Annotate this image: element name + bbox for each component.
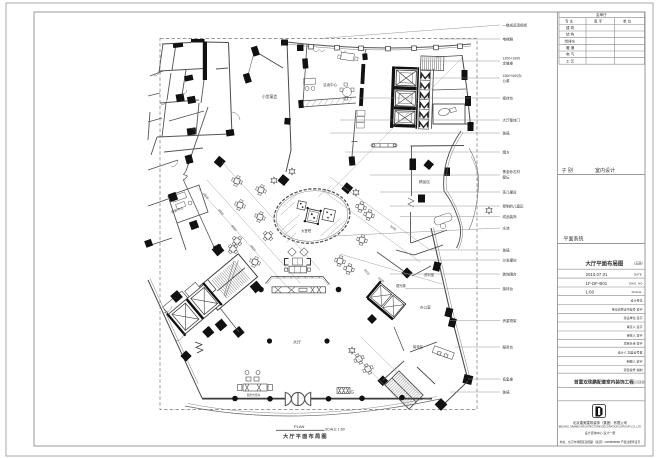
svg-text:PLAN: PLAN	[294, 424, 305, 429]
svg-text:成品装饰: 成品装饰	[503, 214, 517, 219]
svg-text:(五层改造): (五层改造)	[633, 380, 645, 384]
svg-text:工 艺: 工 艺	[566, 58, 575, 63]
svg-text:黑金砂石材: 黑金砂石材	[503, 169, 521, 174]
svg-text:签 字: 签 字	[594, 18, 603, 23]
svg-text:SCALE: SCALE	[632, 290, 642, 294]
svg-text:会审厅: 会审厅	[596, 12, 607, 17]
svg-text:装饰隔台: 装饰隔台	[503, 272, 517, 277]
svg-text:建 筑: 建 筑	[566, 25, 575, 30]
svg-text:预制的儿童区: 预制的儿童区	[503, 204, 524, 209]
svg-text:G: G	[351, 390, 355, 395]
svg-text:服务台: 服务台	[503, 345, 514, 350]
svg-text:玻璃: 玻璃	[503, 248, 511, 253]
svg-text:北京建美建筑装饰（集团）有限公司: 北京建美建筑装饰（集团）有限公司	[573, 420, 627, 425]
svg-text:壁坛: 壁坛	[503, 175, 511, 180]
svg-text:DATE: DATE	[634, 273, 642, 277]
svg-text:暖 通: 暖 通	[566, 45, 575, 50]
svg-text:接待区: 接待区	[413, 344, 424, 349]
svg-text:洽谈中心: 洽谈中心	[323, 82, 338, 87]
svg-text:SCALE 1:60: SCALE 1:60	[325, 428, 345, 432]
svg-text:设计咨询中心 设计一部: 设计咨询中心 设计一部	[585, 430, 616, 435]
svg-text:玻璃: 玻璃	[503, 131, 511, 136]
svg-text:制图人 签字: 制图人 签字	[627, 359, 643, 364]
svg-text:地址：北京市朝阳区建国路（集团）4008888888 产权: 地址：北京市朝阳区建国路（集团）4008888888 产权注册师证号	[560, 440, 641, 444]
svg-text:首富双珠鹏配套室内装饰工程: 首富双珠鹏配套室内装饰工程	[574, 379, 634, 386]
svg-text:室内设计: 室内设计	[595, 167, 615, 174]
svg-text:服务台咨询: 服务台咨询	[247, 393, 260, 397]
svg-text:审定人 签字: 审定人 签字	[627, 324, 643, 329]
svg-text:1500+600办: 1500+600办	[503, 73, 523, 78]
svg-text:1200+1900: 1200+1900	[503, 57, 521, 61]
svg-text:大厅: 大厅	[293, 339, 301, 345]
svg-text:建设单位 签字: 建设单位 签字	[624, 315, 643, 320]
svg-text:一楼成品顶视柜: 一楼成品顶视柜	[503, 23, 528, 28]
svg-text:公桌: 公桌	[503, 78, 511, 83]
svg-text:玻璃: 玻璃	[503, 390, 511, 395]
svg-text:DWG. NO: DWG. NO	[629, 282, 643, 286]
svg-text:沙发摆向: 沙发摆向	[503, 258, 517, 263]
svg-text:结 构: 结 构	[566, 32, 575, 37]
svg-text:电梯厢: 电梯厢	[503, 37, 514, 42]
svg-text:小型宴会: 小型宴会	[262, 94, 277, 99]
svg-text:水池: 水池	[503, 226, 511, 231]
svg-text:办公室: 办公室	[420, 305, 431, 310]
svg-text:（五层）: （五层）	[632, 261, 645, 266]
svg-text:定做桌: 定做桌	[503, 61, 514, 66]
svg-text:资料室: 资料室	[424, 272, 435, 277]
svg-text:接待台: 接待台	[503, 286, 514, 291]
svg-text:专 业: 专 业	[565, 18, 574, 23]
svg-text:设计单位: 设计单位	[630, 298, 642, 303]
svg-text:给排水: 给排水	[565, 38, 576, 43]
svg-text:电 气: 电 气	[566, 52, 575, 57]
svg-text:平面系统: 平面系统	[564, 236, 584, 243]
svg-text:接待台: 接待台	[503, 96, 514, 101]
svg-text:精品店: 精品店	[419, 179, 430, 184]
svg-text:大厅平面布局图: 大厅平面布局图	[283, 432, 328, 440]
svg-text:2010.07.01: 2010.07.01	[586, 272, 609, 277]
svg-text:单位资质证书编号 签字: 单位资质证书编号 签字	[612, 307, 643, 312]
svg-text:项目负责 签字: 项目负责 签字	[624, 341, 643, 346]
svg-text:项目编号 编制: 项目编号 编制	[624, 367, 643, 372]
svg-text:观光梯: 观光梯	[396, 283, 406, 288]
svg-text:1:60: 1:60	[586, 290, 595, 295]
svg-text:大堂吧: 大堂吧	[301, 228, 312, 233]
svg-text:审核人 签字: 审核人 签字	[627, 333, 643, 338]
svg-text:设计人 加盖证号章: 设计人 加盖证号章	[618, 350, 643, 355]
svg-text:单 位: 单 位	[623, 18, 632, 23]
svg-text:大厅平面布局图: 大厅平面布局图	[586, 260, 624, 268]
svg-text:大厅整体门: 大厅整体门	[503, 118, 521, 123]
svg-text:茶几摆设: 茶几摆设	[503, 190, 517, 195]
svg-text:低玺桌: 低玺桌	[503, 377, 514, 382]
svg-text:子 别: 子 别	[562, 167, 573, 174]
svg-text:烟方: 烟方	[503, 150, 511, 155]
svg-text:贵重物架: 贵重物架	[503, 318, 517, 323]
svg-text:BEIJING JIANMEI ARCHITECTURE D: BEIJING JIANMEI ARCHITECTURE DECORATION …	[559, 425, 642, 429]
svg-text:1F-DF-B01: 1F-DF-B01	[586, 281, 608, 286]
